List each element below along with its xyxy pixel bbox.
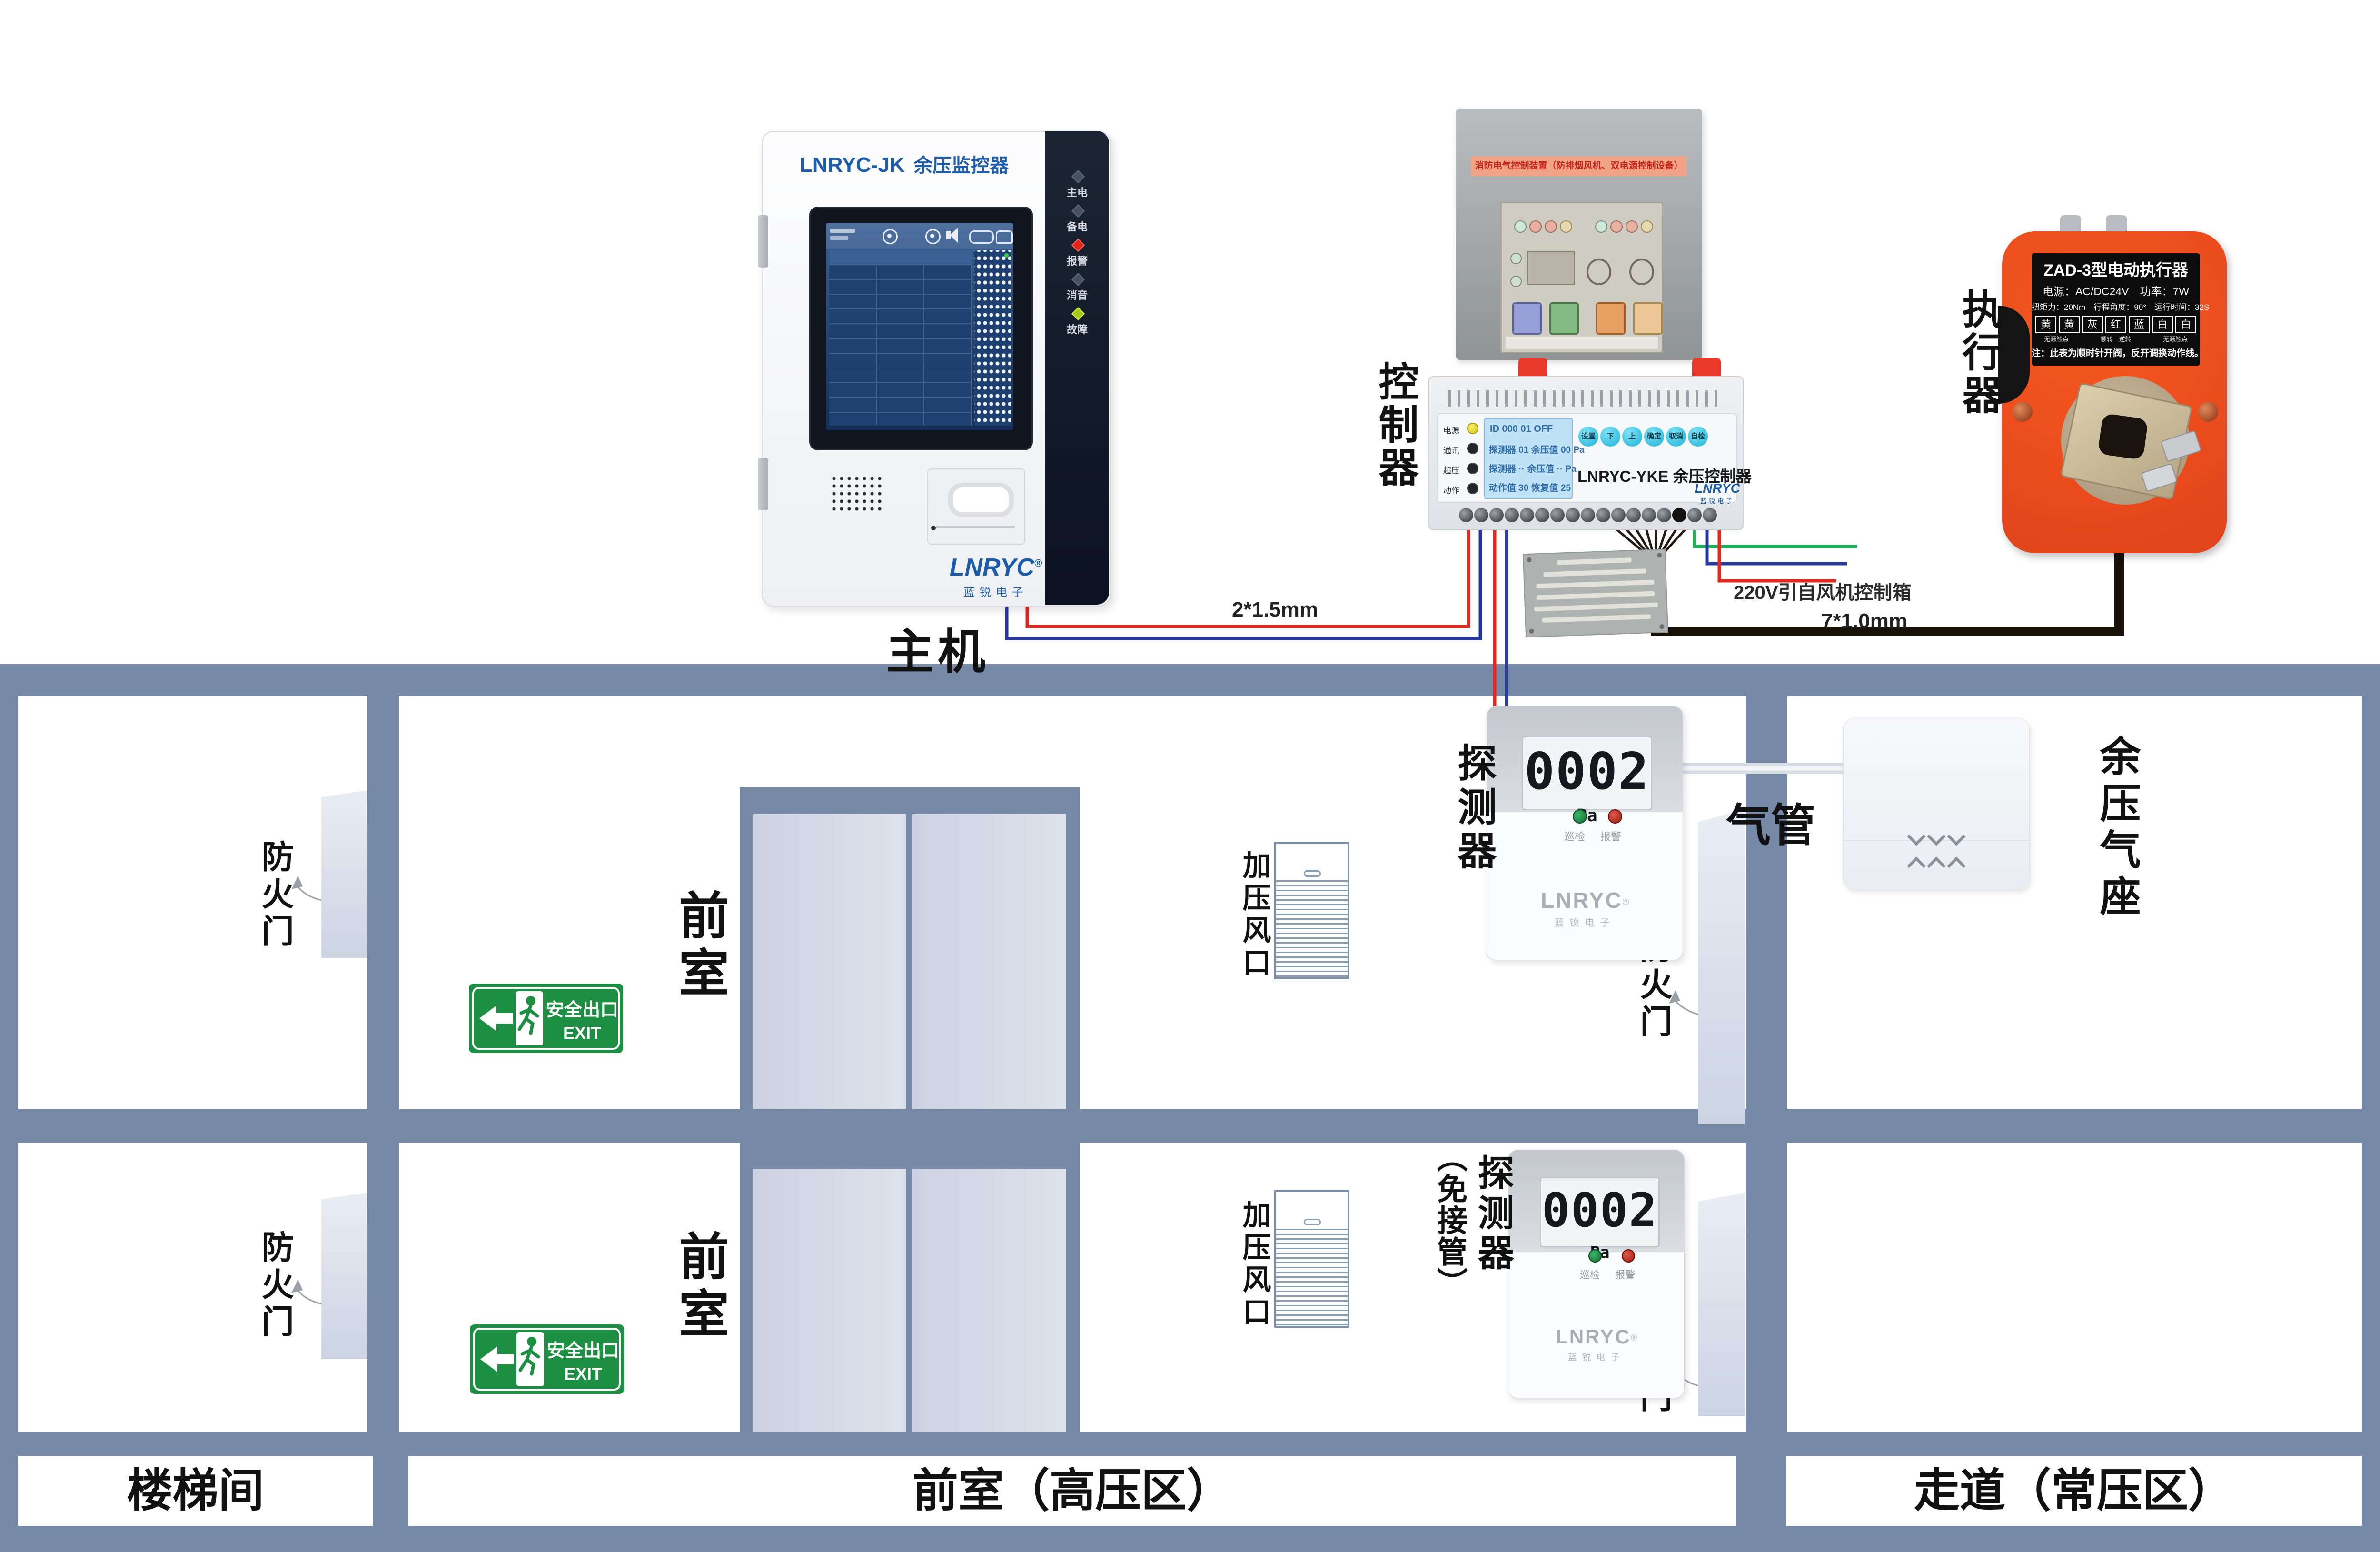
fire-door-leaf xyxy=(1698,1193,1745,1416)
din-face: 电源 通讯 超压 动作 ID 000 01 OFF 探测器 01 余压值 00 … xyxy=(1437,413,1737,503)
din-led-label: 电源 xyxy=(1443,424,1459,436)
nameplate xyxy=(1523,549,1668,637)
led-label: 巡检 xyxy=(1564,828,1585,844)
actuator-body: ZAD-3型电动执行器 电源：AC/DC24V 功率：7W 扭矩力：20Nm 行… xyxy=(2002,231,2227,553)
screen-table xyxy=(829,250,972,426)
backup-power-led xyxy=(1071,204,1085,218)
host-screen[interactable] xyxy=(826,223,1013,430)
fire-door-leaf xyxy=(1698,809,1745,1124)
led-label: 报警 xyxy=(1615,1267,1635,1282)
host-title-model: LNRYC-JK xyxy=(800,153,905,177)
indicator-lamp xyxy=(1529,220,1542,233)
wall-top xyxy=(0,664,2380,696)
vent-label: 加压风口 xyxy=(1234,850,1275,980)
plate-note: 注：此表为顺时针开阀，反开调换动作线。 xyxy=(2032,346,2200,359)
selftest-button[interactable]: 自检 xyxy=(1688,427,1708,447)
wall-middle xyxy=(0,1109,2380,1143)
nameplate-screw xyxy=(1527,557,1531,562)
wire-note: 无源触点 xyxy=(2163,334,2188,343)
host-title-product: 余压监控器 xyxy=(913,155,1009,176)
wire-label-actuator: 7*1.0mm xyxy=(1821,609,1907,633)
detector2-sublabel: （免接管） xyxy=(1428,1142,1472,1299)
hinge xyxy=(758,215,768,268)
terminal-screw-black xyxy=(1672,508,1686,522)
tube-label: 气管 xyxy=(1726,789,1815,854)
terminal-screw xyxy=(1657,508,1671,522)
wall-left-edge xyxy=(0,664,18,1552)
down-button[interactable]: 下 xyxy=(1600,427,1620,447)
wire-note: 无源触点 xyxy=(2044,334,2069,343)
printer[interactable] xyxy=(927,468,1025,545)
lcd-line: ID 000 01 OFF xyxy=(1490,424,1553,435)
settings-button[interactable]: 设置 xyxy=(1578,427,1598,447)
alarm-led-red xyxy=(1608,809,1622,824)
terminal-screw xyxy=(1474,508,1488,522)
nameplate-screw xyxy=(1529,629,1534,634)
exit-sign: 安全出口 EXIT xyxy=(470,1324,624,1394)
panel-display xyxy=(1527,251,1575,285)
wire-note: 顺转 逆转 xyxy=(2100,334,2131,343)
host-screen-bezel xyxy=(809,207,1033,450)
front-room-label: 前室 xyxy=(663,1230,736,1344)
indicator-lamp xyxy=(1545,220,1557,233)
indicator-lamp xyxy=(1641,220,1653,233)
pressure-seat xyxy=(1843,718,2030,890)
reset-button[interactable] xyxy=(1633,302,1663,335)
screen-topbar xyxy=(826,223,1013,249)
fire-door-label: 防火门 xyxy=(251,840,298,951)
wire-cell: 白 xyxy=(2175,316,2196,333)
din-led-label: 通讯 xyxy=(1443,444,1459,456)
terminal-screw xyxy=(1489,508,1504,522)
brand-logo-sub: 蓝锐电子 xyxy=(1508,1350,1684,1363)
patrol-led-green xyxy=(1588,1249,1602,1263)
host-label: 主机 xyxy=(852,613,1023,682)
wire-cell: 蓝 xyxy=(2129,316,2150,333)
pressure-value: 0002 xyxy=(1542,1184,1658,1238)
lcd-line: 动作值 30 恢复值 25 xyxy=(1489,481,1571,494)
led-label: 备电 xyxy=(1045,219,1109,234)
exit-sign: 安全出口 EXIT xyxy=(469,984,623,1053)
din-led-label: 超压 xyxy=(1443,464,1459,476)
led-label: 报警 xyxy=(1600,828,1621,844)
plate-line2: 电源：AC/DC24V 功率：7W xyxy=(2032,282,2200,298)
fire-door-leaf xyxy=(321,790,367,958)
indicator-lamp xyxy=(1560,220,1572,233)
zone-label-frontroom: 前室（高压区） xyxy=(408,1456,1736,1526)
terminal-screw xyxy=(1566,508,1580,522)
terminal-screw xyxy=(1626,508,1641,522)
terminal-screw xyxy=(1505,508,1519,522)
terminal-screw xyxy=(1642,508,1656,522)
cancel-button[interactable]: 取消 xyxy=(1666,427,1686,447)
pressure-vent xyxy=(1274,842,1349,979)
zone-label-corridor: 走道（常压区） xyxy=(1786,1456,2362,1526)
pressure-detector-tubefree: 0002 Pa 巡检 报警 LNRYC® 蓝锐电子 xyxy=(1508,1150,1685,1398)
printer-handle xyxy=(948,483,1014,517)
alarm-led-red xyxy=(1622,1249,1635,1263)
led-label: 巡检 xyxy=(1580,1267,1600,1282)
fire-door-leaf xyxy=(321,1193,367,1359)
brand-logo: LNRYC® 蓝锐电子 xyxy=(1508,1325,1684,1363)
wire-cell: 黄 xyxy=(2035,316,2056,333)
fire-control-box: 消防电气控制装置（防排烟风机、双电源控制设备） xyxy=(1456,109,1702,360)
start-button[interactable] xyxy=(1512,302,1542,335)
printer-slot xyxy=(936,526,1015,528)
exit-sign-en: EXIT xyxy=(564,1364,602,1383)
firebox-panel xyxy=(1500,202,1663,353)
nameplate-screw xyxy=(1659,624,1664,629)
alarm-led xyxy=(1071,239,1085,252)
up-button[interactable]: 上 xyxy=(1622,427,1642,447)
comm-led xyxy=(1467,443,1478,454)
exit-sign-cn: 安全出口 xyxy=(546,1000,618,1020)
indicator-lamp xyxy=(1626,220,1638,233)
fault-led xyxy=(1071,307,1085,320)
wire-label-power: 220V引自风机控制箱 xyxy=(1734,577,1911,605)
speaker-grille xyxy=(830,475,883,513)
control-dial[interactable] xyxy=(1629,259,1654,285)
led-label: 消音 xyxy=(1045,287,1109,302)
elevator-door-panel xyxy=(753,1169,906,1432)
terminal-screw xyxy=(1535,508,1549,522)
control-dial[interactable] xyxy=(1587,259,1611,285)
led-label: 主电 xyxy=(1045,184,1109,199)
screen-table-header xyxy=(829,250,972,264)
power-led xyxy=(1071,170,1085,183)
lcd-line: 探测器 ·· 余压值 ·· Pa xyxy=(1489,462,1577,475)
fire-door-label: 防火门 xyxy=(251,1230,298,1342)
terminal-screw xyxy=(1596,508,1610,522)
led-label: 故障 xyxy=(1045,321,1109,337)
terminal-screw xyxy=(1459,508,1473,522)
speaker-icon-cone xyxy=(950,228,958,243)
brand-logo: LNRYC® xyxy=(950,554,1042,581)
exit-sign-en: EXIT xyxy=(563,1023,601,1043)
stop-button[interactable] xyxy=(1549,302,1579,335)
firebox-banner-text: 消防电气控制装置（防排烟风机、双电源控制设备） xyxy=(1471,156,1687,176)
actuator-screw xyxy=(2013,402,2033,422)
host-title: LNRYC-JK 余压监控器 xyxy=(800,150,1009,178)
actuator-screw xyxy=(2198,402,2218,422)
detector-lcd: 0002 Pa xyxy=(1540,1177,1660,1247)
led-label: 报警 xyxy=(1045,253,1109,268)
wire-cell: 灰 xyxy=(2082,316,2103,333)
panel-lamp xyxy=(1510,276,1522,287)
terminal-screw xyxy=(1520,508,1534,522)
indicator-lamp xyxy=(1514,220,1527,233)
printer-latch-dot xyxy=(931,526,936,530)
elevator-door-panel xyxy=(912,814,1066,1109)
detector2-label: 探测器 xyxy=(1466,1154,1518,1274)
wire-cell: 黄 xyxy=(2059,316,2080,333)
host-logo: LNRYC® 蓝锐电子 xyxy=(943,553,1048,599)
screen-dot-matrix xyxy=(974,250,1011,426)
vent-label: 加压风口 xyxy=(1234,1200,1275,1329)
indicator-lamp xyxy=(1595,220,1607,233)
brand-logo-sub: 蓝锐电子 xyxy=(1695,496,1740,505)
seat-vent-chevrons xyxy=(1844,830,2029,846)
seat-label: 余压气座 xyxy=(2087,735,2146,922)
power-led xyxy=(1467,423,1478,434)
elevator-door-panel xyxy=(912,1169,1066,1432)
record-icon-dot xyxy=(887,234,892,238)
wall-right-edge xyxy=(2362,664,2380,1552)
terminal-screw xyxy=(1611,508,1626,522)
action-led xyxy=(1467,483,1478,494)
wall-stairwell xyxy=(367,696,399,1432)
seat-vent-chevrons xyxy=(1844,859,2029,875)
panel-lamp xyxy=(1510,253,1522,264)
din-controller: 电源 通讯 超压 动作 ID 000 01 OFF 探测器 01 余压值 00 … xyxy=(1428,376,1744,530)
detector-lcd: 0002 Pa xyxy=(1522,736,1652,810)
terminal-screw xyxy=(1550,508,1565,522)
hinge xyxy=(758,458,768,510)
wire-cell: 红 xyxy=(2105,316,2126,333)
actuator-shaft-hole[interactable] xyxy=(2097,413,2148,460)
target-icon-dot xyxy=(930,234,934,238)
actuator-plate: ZAD-3型电动执行器 电源：AC/DC24V 功率：7W 扭矩力：20Nm 行… xyxy=(2032,253,2200,366)
return-icon[interactable] xyxy=(969,230,994,244)
firebox-banner: 消防电气控制装置（防排烟风机、双电源控制设备） xyxy=(1471,156,1687,176)
status-dot-green xyxy=(1004,253,1009,258)
nameplate-screw xyxy=(1657,553,1662,557)
home-icon[interactable] xyxy=(996,230,1013,244)
din-lcd: ID 000 01 OFF 探测器 01 余压值 00 Pa 探测器 ·· 余压… xyxy=(1484,418,1573,499)
elevator-door-panel xyxy=(753,814,906,1109)
panel-info-strip xyxy=(1506,337,1658,349)
brand-logo: LNRYC® 蓝锐电子 xyxy=(1487,887,1683,929)
terminal-screw xyxy=(1703,508,1717,522)
patrol-led-green xyxy=(1573,809,1587,824)
detector-label: 探测器 xyxy=(1445,743,1502,874)
diagram-canvas: 楼梯间 前室（高压区） 走道（常压区） xyxy=(0,0,2380,1552)
zone-label-stairwell: 楼梯间 xyxy=(18,1456,373,1526)
pressure-value: 0002 xyxy=(1524,742,1649,801)
wire-cell: 白 xyxy=(2152,316,2173,333)
mute-led xyxy=(1071,273,1085,286)
lcd-line: 探测器 01 余压值 00 Pa xyxy=(1489,443,1585,456)
pressure-vent xyxy=(1274,1190,1349,1328)
pressure-detector: 0002 Pa 巡检 报警 LNRYC® 蓝锐电子 xyxy=(1487,706,1683,960)
indicator-lamp xyxy=(1610,220,1623,233)
plate-title: ZAD-3型电动执行器 xyxy=(2032,257,2200,280)
wire-label-bus: 2*1.5mm xyxy=(1232,598,1318,622)
confirm-button[interactable]: 确定 xyxy=(1644,427,1664,447)
brand-logo-sub: 蓝锐电子 xyxy=(1487,915,1683,929)
actuator-label: 执行器 xyxy=(1951,289,2008,417)
controller-label: 控制器 xyxy=(1367,361,1425,489)
test-button[interactable] xyxy=(1596,302,1626,335)
overpressure-led xyxy=(1467,463,1478,474)
screen-status-text xyxy=(830,229,855,233)
exit-sign-cn: 安全出口 xyxy=(547,1341,619,1361)
screen-status-text xyxy=(830,236,848,240)
brand-logo-sub: 蓝锐电子 xyxy=(943,583,1048,599)
brand-logo: LNRYC 蓝锐电子 xyxy=(1695,481,1740,505)
host-led-strip: 主电 备电 报警 消音 故障 xyxy=(1045,131,1109,605)
din-led-label: 动作 xyxy=(1443,484,1459,496)
terminal-screw xyxy=(1687,508,1702,522)
plate-line3: 扭矩力：20Nm 行程角度：90° 运行时间：32S xyxy=(2032,300,2200,312)
vent-slots xyxy=(1448,390,1724,407)
front-room-label: 前室 xyxy=(663,889,736,1004)
terminal-screw xyxy=(1581,508,1595,522)
